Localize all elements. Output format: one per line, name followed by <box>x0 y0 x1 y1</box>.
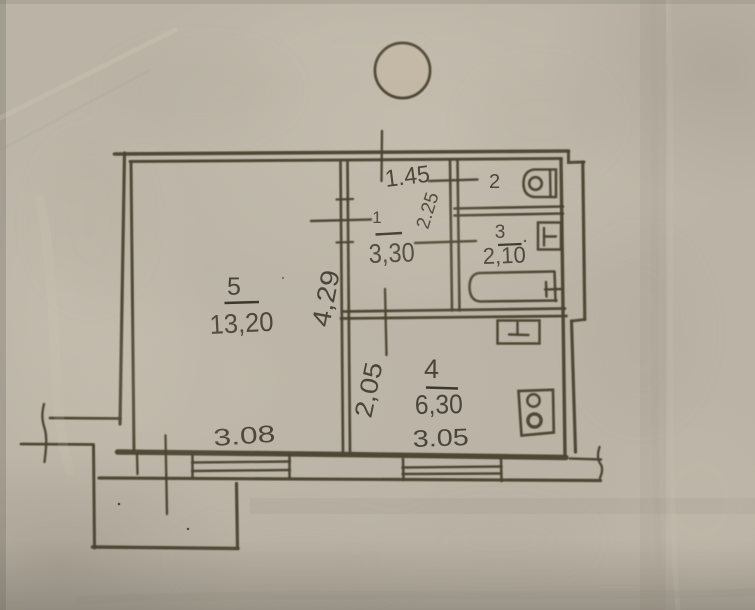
svg-text:6,30: 6,30 <box>415 389 464 420</box>
svg-text:1.45: 1.45 <box>383 161 431 193</box>
svg-text:5: 5 <box>227 273 241 301</box>
svg-text:3.05: 3.05 <box>412 424 469 453</box>
svg-text:4: 4 <box>424 354 439 384</box>
svg-text:2: 2 <box>489 171 500 193</box>
